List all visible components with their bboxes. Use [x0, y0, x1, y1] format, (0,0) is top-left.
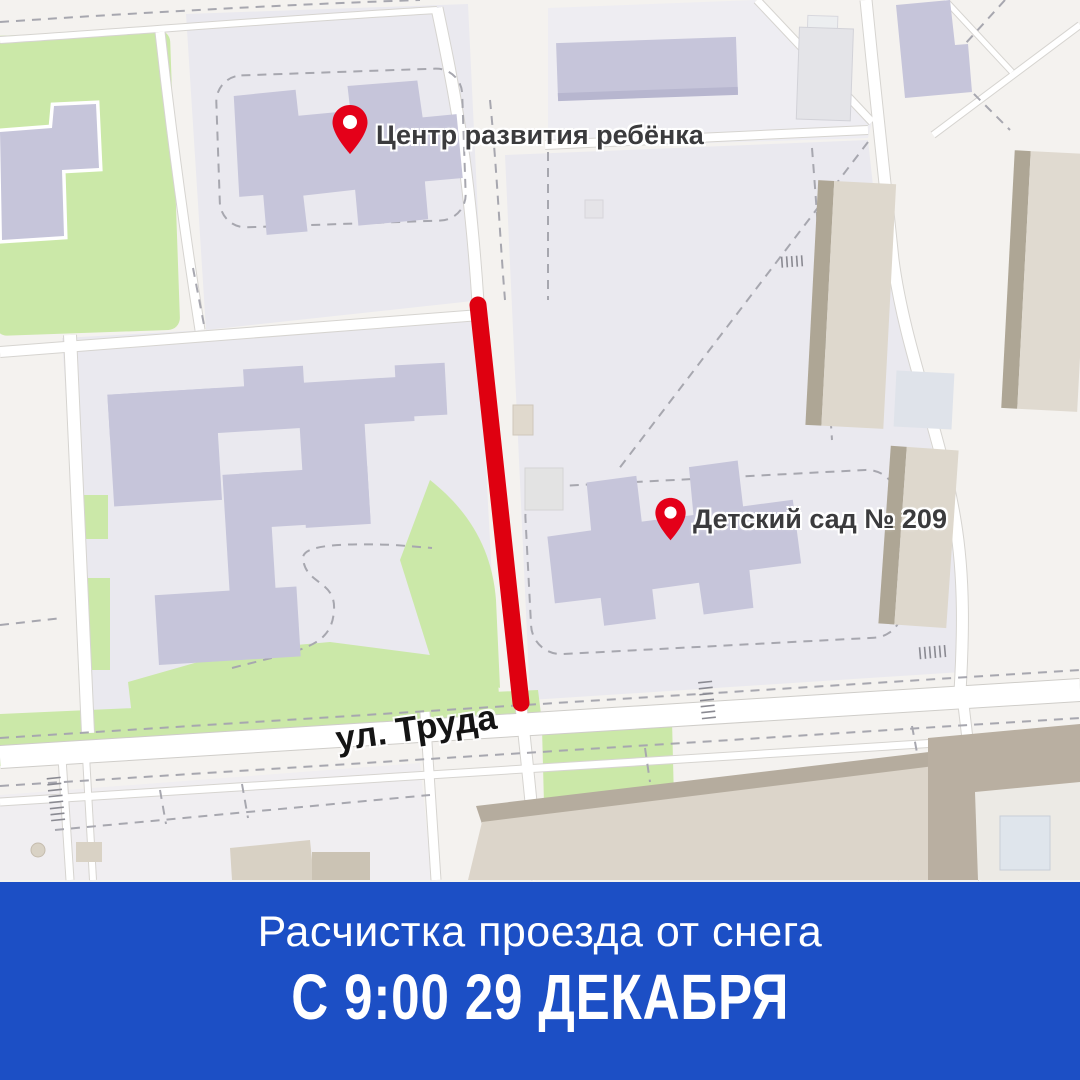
map-canvas	[0, 0, 1080, 882]
announcement-banner: Расчистка проезда от снега С 9:00 29 ДЕК…	[0, 882, 1080, 1080]
snow-clearing-announcement-poster: Центр развития ребёнка Детский сад № 209…	[0, 0, 1080, 1080]
map-area: Центр развития ребёнка Детский сад № 209…	[0, 0, 1080, 882]
banner-title: Расчистка проезда от снега	[258, 908, 823, 956]
banner-datetime: С 9:00 29 ДЕКАБРЯ	[291, 964, 789, 1030]
